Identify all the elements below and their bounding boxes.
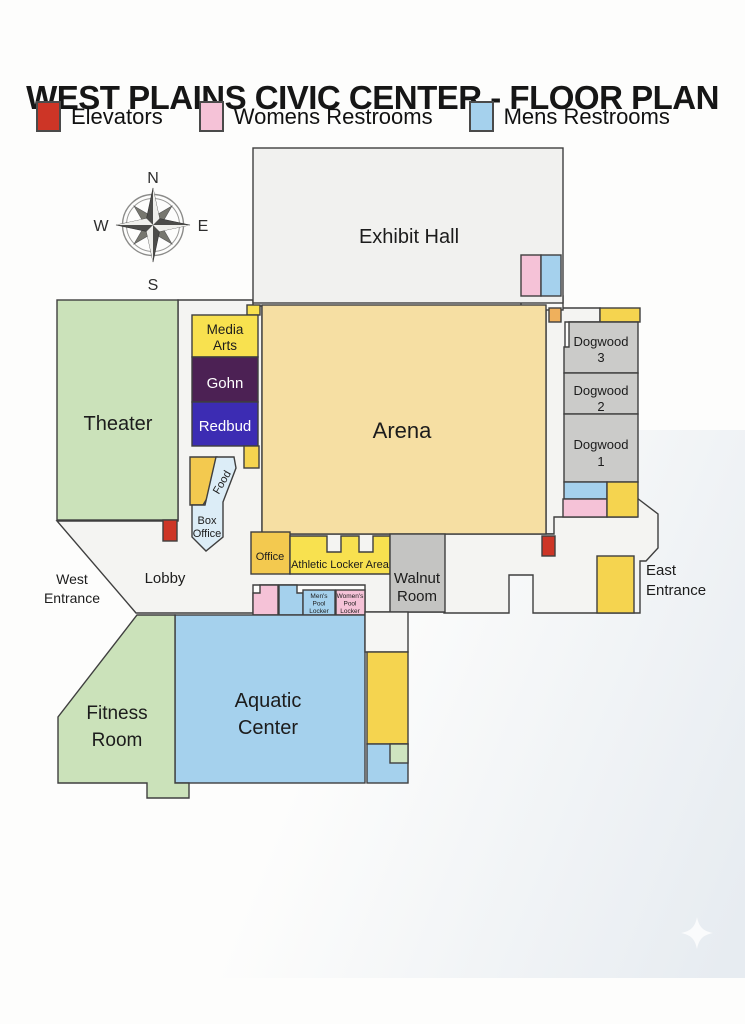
compass-rose-icon: N S W E bbox=[93, 170, 208, 294]
media-arts-tab bbox=[247, 305, 260, 315]
floor-plan: N S W E Exhibit HallArenaTheaterMediaArt… bbox=[0, 0, 745, 1024]
pool-womens-restroom bbox=[253, 585, 278, 615]
arena-corner-closet bbox=[549, 308, 561, 322]
sparkle-icon bbox=[681, 917, 713, 949]
dogwood-strip bbox=[600, 308, 640, 322]
pool-south-yellow-room bbox=[367, 652, 408, 744]
pool-mens-restroom bbox=[279, 585, 303, 615]
gohn-label: Gohn bbox=[207, 375, 244, 392]
elevator-east bbox=[542, 536, 555, 556]
lobby-label: Lobby bbox=[145, 570, 186, 587]
east-entrance-label: EastEntrance bbox=[646, 562, 706, 599]
pool-south-hall bbox=[365, 612, 408, 652]
exhibit-hall-label: Exhibit Hall bbox=[359, 226, 459, 248]
exhibit-womens-restroom bbox=[521, 255, 541, 296]
dogwood-yellow-room bbox=[607, 482, 638, 517]
dogwood-mens-restroom bbox=[564, 482, 607, 499]
dogwood-womens-restroom bbox=[563, 499, 607, 517]
compass-west-label: W bbox=[93, 218, 109, 235]
walnut-room-label: WalnutRoom bbox=[394, 570, 441, 605]
exhibit-mens-restroom bbox=[541, 255, 561, 296]
redbud-tab bbox=[244, 446, 259, 468]
theater-label: Theater bbox=[84, 413, 153, 435]
elevator-west bbox=[163, 520, 177, 541]
compass-east-label: E bbox=[198, 218, 209, 235]
rooms-layer bbox=[57, 148, 658, 798]
west-entrance-label: WestEntrance bbox=[44, 571, 100, 606]
athletic-locker-area-label: Athletic Locker Area bbox=[291, 559, 390, 571]
redbud-label: Redbud bbox=[199, 418, 252, 435]
compass-south-label: S bbox=[148, 277, 159, 294]
theater bbox=[57, 300, 178, 520]
compass-north-label: N bbox=[147, 170, 159, 187]
floor-plan-page: { "title": "WEST PLAINS CIVIC CENTER - F… bbox=[0, 0, 745, 1024]
arena-label: Arena bbox=[373, 418, 432, 443]
east-entrance-vestibule bbox=[597, 556, 634, 613]
pool-south-green-room bbox=[390, 744, 408, 763]
office-label: Office bbox=[256, 551, 285, 563]
